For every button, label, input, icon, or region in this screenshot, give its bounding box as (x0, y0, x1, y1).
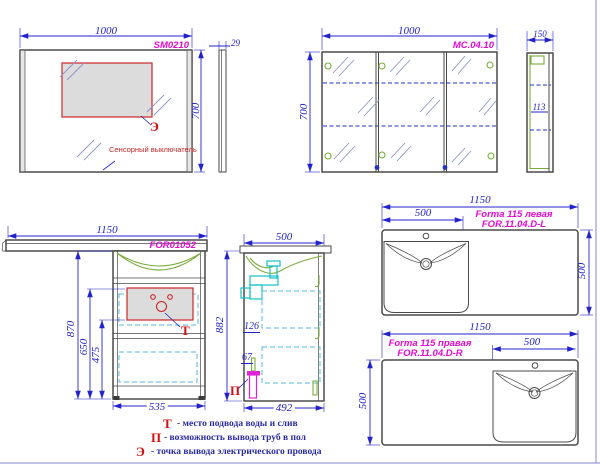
dim-side-depth: 500 (276, 231, 293, 243)
dim-cabinet-height: 700 (298, 104, 310, 121)
sensor-switch-label: Сенсорный выключатель (109, 145, 163, 155)
dim-vanity-body-width: 535 (147, 401, 168, 413)
floor-pipe-cap (247, 371, 260, 376)
dim-cabinet-depth: 150 (533, 29, 547, 39)
dim-basin-left-width: 1150 (469, 194, 490, 206)
model-code-basin-right: FOR.11.04.D-R (397, 348, 462, 359)
countertop-top-view (382, 360, 578, 445)
legend-text-water: - место подвода воды и слив (177, 419, 298, 429)
legend-text-floor: - возможность вывода труб в пол (164, 433, 306, 443)
legend-marker-floor: П (151, 431, 161, 444)
countertop-top-view (382, 230, 578, 315)
water-supply-zone (127, 288, 193, 320)
dim-siphon-126: 126 (243, 321, 260, 333)
dim-side-bottom-depth: 492 (274, 402, 295, 414)
dim-cabinet-inner-depth: 113 (533, 102, 546, 112)
floor-point-marker: П (230, 384, 240, 397)
foot (199, 396, 205, 400)
model-code-basin-left: FOR.11.04.D-L (482, 219, 546, 230)
dim-cabinet-width: 1000 (398, 25, 420, 37)
foot (114, 396, 120, 400)
dim-vanity-650: 650 (78, 339, 90, 356)
model-code-mirror: SM0210 (154, 40, 189, 51)
legend-marker-water: Т (163, 417, 172, 430)
dim-basin-right-bowl: 500 (524, 336, 541, 348)
dim-basin-right-width: 1150 (469, 321, 490, 333)
door-pivot-dot (375, 165, 380, 170)
dim-side-height: 882 (214, 317, 226, 334)
dim-countertop-width: 1150 (96, 224, 117, 236)
legend-marker-electric: Э (136, 445, 145, 458)
door-pivot-dot (443, 165, 448, 170)
model-code-mirror-cabinet: MC.04.10 (453, 40, 494, 51)
drawing-canvas (0, 0, 600, 469)
dim-basin-left-bowl: 500 (415, 207, 432, 219)
dim-mirror-height: 700 (190, 103, 202, 120)
mirror-side-view (209, 41, 230, 172)
dim-basin-right-depth: 500 (357, 393, 369, 410)
dim-vanity-475: 475 (90, 347, 102, 364)
dim-mirror-depth: 29 (231, 38, 240, 48)
technical-drawing-sheet: 1000 SM0210 700 29 Э Сенсорный выключате… (0, 0, 600, 469)
vanity-front-view (3, 226, 208, 410)
legend-text-electric: - точка вывода электрического провода (151, 447, 322, 457)
countertop-side (240, 246, 331, 253)
dim-pipe-67: 67 (241, 352, 253, 364)
dim-vanity-height: 870 (65, 321, 77, 338)
dim-basin-left-depth: 500 (576, 263, 588, 280)
water-point-marker: Т (181, 324, 190, 337)
model-code-vanity: FOR01052 (150, 240, 196, 251)
electric-point-marker: Э (150, 120, 159, 133)
dim-mirror-width: 1000 (95, 25, 117, 37)
